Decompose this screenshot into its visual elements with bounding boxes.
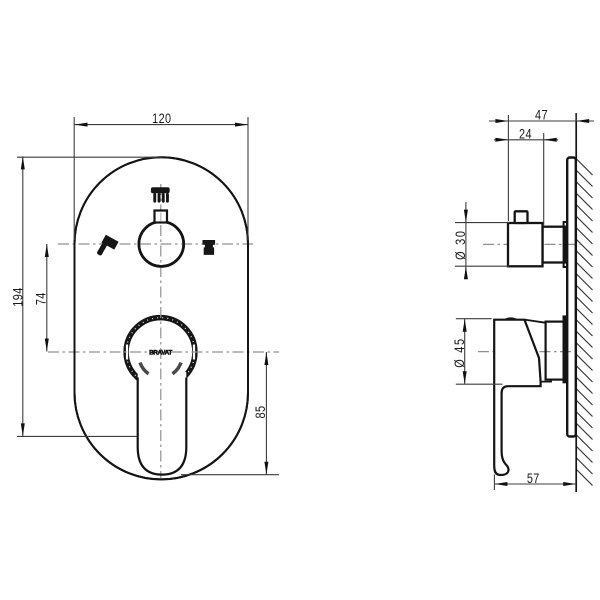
svg-text:85: 85 bbox=[253, 406, 269, 419]
svg-text:BRAVAT: BRAVAT bbox=[149, 349, 172, 356]
svg-text:47: 47 bbox=[535, 107, 548, 123]
svg-text:Ø 30: Ø 30 bbox=[453, 229, 469, 260]
svg-text:57: 57 bbox=[527, 471, 540, 487]
svg-text:194: 194 bbox=[10, 287, 26, 306]
svg-text:24: 24 bbox=[519, 126, 532, 142]
svg-text:74: 74 bbox=[33, 292, 49, 305]
svg-text:120: 120 bbox=[152, 111, 171, 127]
svg-text:Ø 45: Ø 45 bbox=[452, 337, 468, 368]
